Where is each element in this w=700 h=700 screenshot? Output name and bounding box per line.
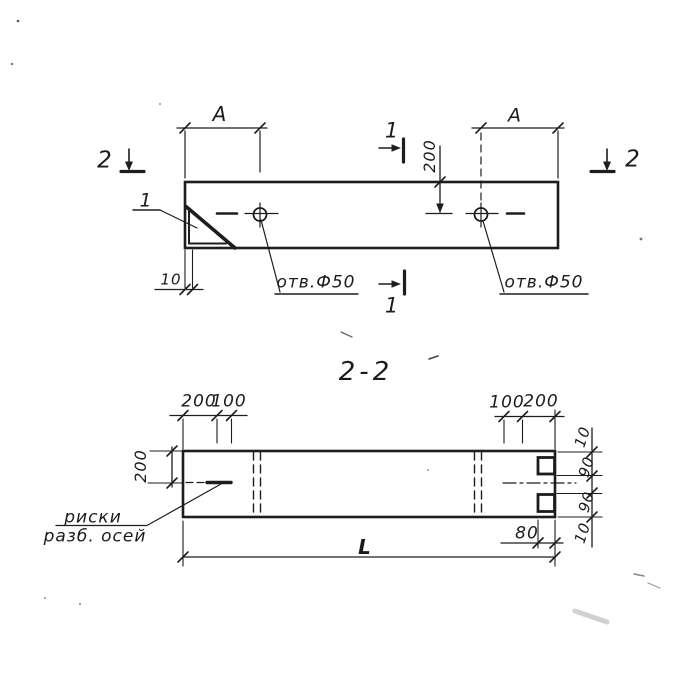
section-label-2-right: 2 bbox=[625, 149, 641, 172]
top-view-linework bbox=[121, 123, 614, 295]
dim-label-200-top-view: 200 bbox=[422, 139, 438, 173]
section-mark-2-left-lines bbox=[121, 149, 144, 172]
section-mark-1-bottom-lines bbox=[379, 271, 405, 294]
hole-label-right: отв.Ф50 bbox=[505, 275, 584, 292]
dim-a-left-lines bbox=[177, 123, 267, 178]
hidden-lines bbox=[254, 452, 482, 516]
dim-label-top-right-100: 100 bbox=[489, 395, 524, 412]
dim-left-200-lines bbox=[148, 446, 182, 488]
drawing-sheet: A A 200 2 2 1 1 1 отв.Ф50 отв.Ф50 10 2-2… bbox=[0, 0, 700, 700]
axis-note-line2: разб. осей bbox=[44, 529, 147, 546]
notch-lower bbox=[538, 495, 555, 512]
section-title: 2-2 bbox=[339, 359, 393, 385]
section-label-1-top: 1 bbox=[385, 121, 399, 142]
hole-label-left: отв.Ф50 bbox=[277, 275, 356, 292]
section-label-2-left: 2 bbox=[97, 150, 113, 173]
dim-label-length: L bbox=[358, 537, 372, 557]
dim-a-right-lines bbox=[472, 123, 564, 202]
dim-top-left-lines bbox=[170, 411, 247, 450]
dim-label-a-left: A bbox=[213, 104, 228, 124]
section-mark-2-right-lines bbox=[591, 149, 614, 172]
part-mark-leader bbox=[133, 210, 197, 228]
drawing-linework bbox=[0, 0, 700, 700]
hole-left bbox=[217, 203, 278, 227]
dim-top-right-lines bbox=[495, 410, 564, 449]
section-label-1-bottom: 1 bbox=[385, 296, 399, 317]
hole-right bbox=[466, 203, 524, 227]
section-outline bbox=[183, 451, 555, 517]
dim-label-10-top-view: 10 bbox=[160, 273, 181, 288]
dim-label-top-left-100: 100 bbox=[211, 394, 246, 411]
axis-note-line1: риски bbox=[64, 510, 122, 527]
dim-label-top-right-200: 200 bbox=[523, 394, 558, 411]
notch-upper bbox=[538, 458, 555, 475]
dim-label-80: 80 bbox=[515, 526, 539, 543]
part-mark-label: 1 bbox=[139, 192, 152, 211]
beam-outline bbox=[185, 182, 558, 248]
dim-label-left-200: 200 bbox=[133, 449, 149, 483]
dim-label-a-right: A bbox=[508, 107, 522, 126]
